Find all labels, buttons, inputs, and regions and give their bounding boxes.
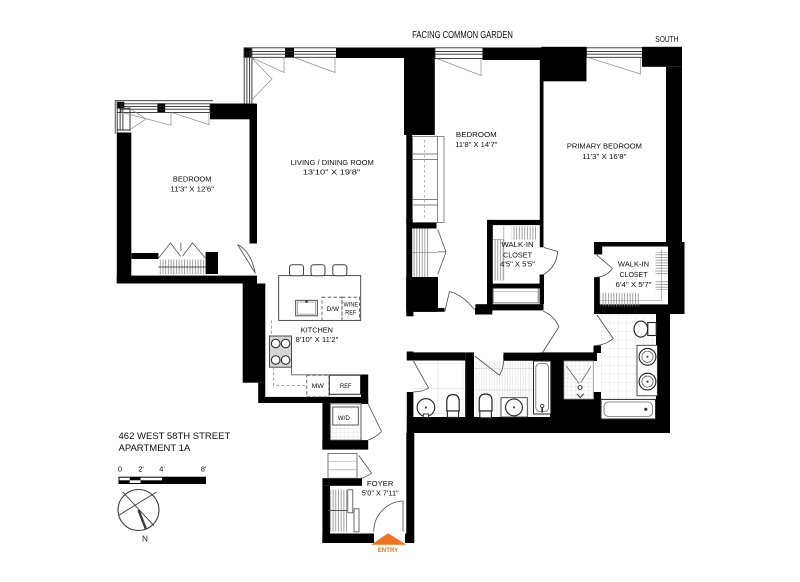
svg-text:2': 2' [138,465,144,474]
svg-text:11'3" X 16'8": 11'3" X 16'8" [582,152,627,161]
svg-text:CLOSET: CLOSET [620,270,648,279]
svg-text:PRIMARY BEDROOM: PRIMARY BEDROOM [567,141,642,150]
svg-text:N: N [142,535,148,544]
svg-text:MW: MW [312,383,325,390]
svg-text:ENTRY: ENTRY [378,547,399,554]
svg-text:BEDROOM: BEDROOM [456,130,497,139]
svg-text:5'0" X 7'11": 5'0" X 7'11" [362,489,399,498]
svg-text:WALK-IN: WALK-IN [618,260,649,269]
svg-text:6'4" X 5'7": 6'4" X 5'7" [616,280,652,289]
svg-text:11'3" X 12'6": 11'3" X 12'6" [170,184,214,193]
svg-text:KITCHEN: KITCHEN [301,326,333,335]
svg-text:SOUTH: SOUTH [655,35,678,44]
svg-text:REF: REF [345,309,356,316]
svg-text:11'8" X 14'7": 11'8" X 14'7" [455,140,497,149]
svg-text:FACING COMMON GARDEN: FACING COMMON GARDEN [412,30,513,41]
svg-text:462 WEST 58TH STREET: 462 WEST 58TH STREET [119,431,231,442]
svg-text:WALK-IN: WALK-IN [501,240,533,249]
svg-text:13'10" X 19'8": 13'10" X 19'8" [303,168,361,177]
svg-text:0: 0 [118,465,122,474]
svg-text:REF: REF [340,383,352,390]
svg-text:W/D: W/D [338,415,350,422]
svg-text:WINE: WINE [344,301,359,308]
svg-text:BEDROOM: BEDROOM [173,174,212,183]
svg-text:FOYER: FOYER [367,479,394,488]
svg-text:8'10" X 11'2": 8'10" X 11'2" [296,335,339,344]
svg-text:4'5" X 5'5": 4'5" X 5'5" [500,259,535,268]
svg-text:LIVING / DINING ROOM: LIVING / DINING ROOM [291,158,374,167]
svg-text:4': 4' [159,465,165,474]
svg-text:APARTMENT 1A: APARTMENT 1A [119,443,191,454]
svg-text:CLOSET: CLOSET [503,250,532,259]
svg-text:8': 8' [201,465,207,474]
svg-text:D/W: D/W [327,306,340,313]
